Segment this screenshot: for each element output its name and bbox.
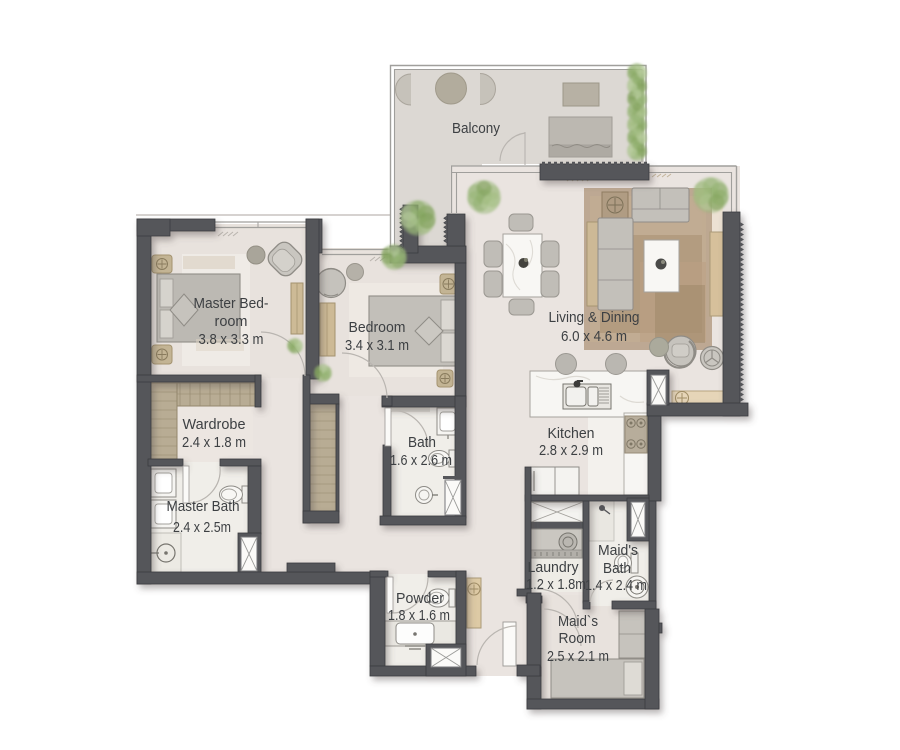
svg-text:Bedroom: Bedroom <box>349 319 406 336</box>
svg-text:2.8 x 2.9 m: 2.8 x 2.9 m <box>539 443 603 459</box>
svg-text:3.4 x 3.1 m: 3.4 x 3.1 m <box>345 337 409 354</box>
svg-text:Maid`s: Maid`s <box>558 614 598 630</box>
svg-text:Kitchen: Kitchen <box>548 426 595 442</box>
svg-text:2.5 x 2.1 m: 2.5 x 2.1 m <box>547 649 609 665</box>
svg-text:2.4 x 2.5m: 2.4 x 2.5m <box>173 520 231 536</box>
svg-text:Laundry: Laundry <box>528 560 580 576</box>
svg-text:1.8 x 1.6 m: 1.8 x 1.6 m <box>388 608 450 624</box>
svg-text:Master Bath: Master Bath <box>167 499 240 515</box>
svg-text:Bath: Bath <box>603 561 631 577</box>
svg-text:Bath: Bath <box>408 435 436 451</box>
svg-text:Balcony: Balcony <box>452 120 500 137</box>
svg-text:Master Bed-: Master Bed- <box>194 295 269 312</box>
svg-text:Living & Dining: Living & Dining <box>549 309 640 326</box>
svg-text:Maid's: Maid's <box>598 543 638 559</box>
svg-text:Room: Room <box>559 631 596 647</box>
svg-text:1.6 x 2.6 m: 1.6 x 2.6 m <box>390 453 452 469</box>
svg-text:1.2 x 1.8m: 1.2 x 1.8m <box>526 577 586 593</box>
svg-text:room: room <box>215 313 248 330</box>
svg-text:1.4 x 2.4 m: 1.4 x 2.4 m <box>585 578 647 594</box>
svg-text:2.4 x 1.8 m: 2.4 x 1.8 m <box>182 435 246 451</box>
svg-text:Wardrobe: Wardrobe <box>183 417 246 433</box>
svg-text:3.8 x 3.3 m: 3.8 x 3.3 m <box>199 331 264 348</box>
svg-text:6.0 x 4.6 m: 6.0 x 4.6 m <box>561 328 627 345</box>
svg-text:Powder: Powder <box>396 591 444 607</box>
